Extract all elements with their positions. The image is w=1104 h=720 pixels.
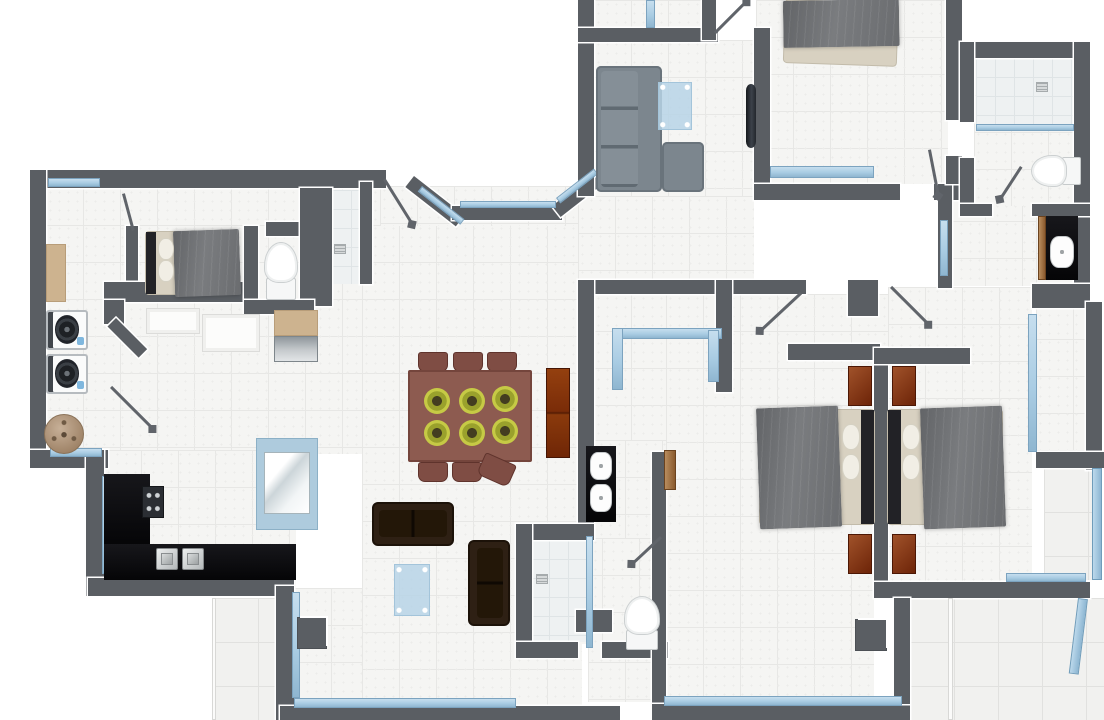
cabinet [274,310,318,336]
wardrobe-rail [612,328,623,390]
island-glass-top [264,452,310,514]
door-panel [1038,216,1046,280]
wardrobe-rail [708,330,719,382]
shower-drain [1036,82,1048,92]
column [298,618,326,648]
wall [652,452,666,706]
refrigerator [274,336,318,362]
tv [746,84,756,148]
wall [126,226,138,286]
pillow [158,260,174,282]
window [664,696,902,706]
wall [1032,204,1090,216]
wall [266,222,302,236]
wall [960,42,1090,58]
pillow [842,424,860,450]
kitchen-sink [156,548,178,570]
west-balcony-floor [214,598,276,720]
wall [754,28,770,200]
wall [578,28,718,42]
wall [652,704,910,720]
wall [244,226,258,306]
window [294,698,516,708]
wall [1032,284,1090,308]
wardrobe-rail [612,328,722,339]
toilet [1031,153,1081,189]
shower-glass-divider [976,124,1074,131]
wall [1036,452,1104,468]
nightstand [892,534,916,574]
wall [894,598,910,704]
vanity-sink [590,484,612,512]
window [48,178,100,187]
bed-double [784,0,898,66]
dining-chair [418,462,448,482]
pillow [902,424,920,450]
place-setting [492,418,518,444]
coffee-table [394,564,430,616]
wall [754,184,900,200]
door-panel [664,450,676,490]
nightstand [848,534,872,574]
entry-shower-floor [332,190,362,284]
wall [88,578,294,596]
wall [280,706,620,720]
sectional-chaise [662,142,704,192]
pillow [842,454,860,480]
wall [576,610,612,632]
shower-drain [536,574,548,584]
wall [516,524,532,658]
pillow [902,454,920,480]
sofa [468,540,510,626]
apartment-floor-plan [0,0,1104,720]
sideboard [546,368,570,458]
window [1028,314,1037,452]
wall [516,642,578,658]
sectional-sofa [596,66,662,192]
terrace-divider [948,598,953,720]
dining-chair [453,352,483,372]
closet-strip [646,0,655,28]
wall [960,204,992,216]
wall [452,206,562,220]
shower-glass-divider [586,536,593,648]
window-sill [1006,573,1086,582]
wall [788,344,880,360]
place-setting [424,388,450,414]
toilet [622,596,662,650]
side-table-round [44,414,84,454]
top-room-floor [594,0,716,30]
wall [874,348,970,364]
balcony-divider [212,598,216,720]
wall [848,280,878,316]
wall [30,170,46,468]
wall [874,350,888,582]
closet [146,308,200,334]
closet-shelf [770,166,874,178]
pillow [158,238,174,260]
entry-glazing [460,201,556,208]
wall [1086,302,1102,470]
door-swing [714,0,748,34]
suite-shower-floor [976,58,1074,126]
closet-strip [940,220,948,276]
washing-machine [46,310,88,350]
shower-drain [334,244,346,254]
wall [360,182,372,284]
dining-chair [487,352,517,372]
place-setting [459,388,485,414]
nightstand [892,366,916,406]
wall [874,582,1090,598]
kitchen-sink [182,548,204,570]
dining-chair [418,352,448,372]
wall [300,188,332,306]
dresser [46,244,66,302]
vanity-sink [590,452,612,480]
dining-table [408,370,532,462]
balcony-railing [1092,468,1102,580]
wall [960,42,974,122]
wall [580,280,806,294]
toilet [262,242,300,300]
closet [202,314,260,352]
coffee-table [658,82,692,130]
east-strip-floor [1036,302,1086,454]
cooktop [142,486,164,518]
place-setting [492,386,518,412]
vanity-sink [1050,236,1074,268]
wall [960,158,974,206]
column [856,620,886,650]
wall [702,0,716,40]
nightstand [848,366,872,406]
sofa [372,502,454,546]
place-setting [459,420,485,446]
washing-machine [46,354,88,394]
place-setting [424,420,450,446]
